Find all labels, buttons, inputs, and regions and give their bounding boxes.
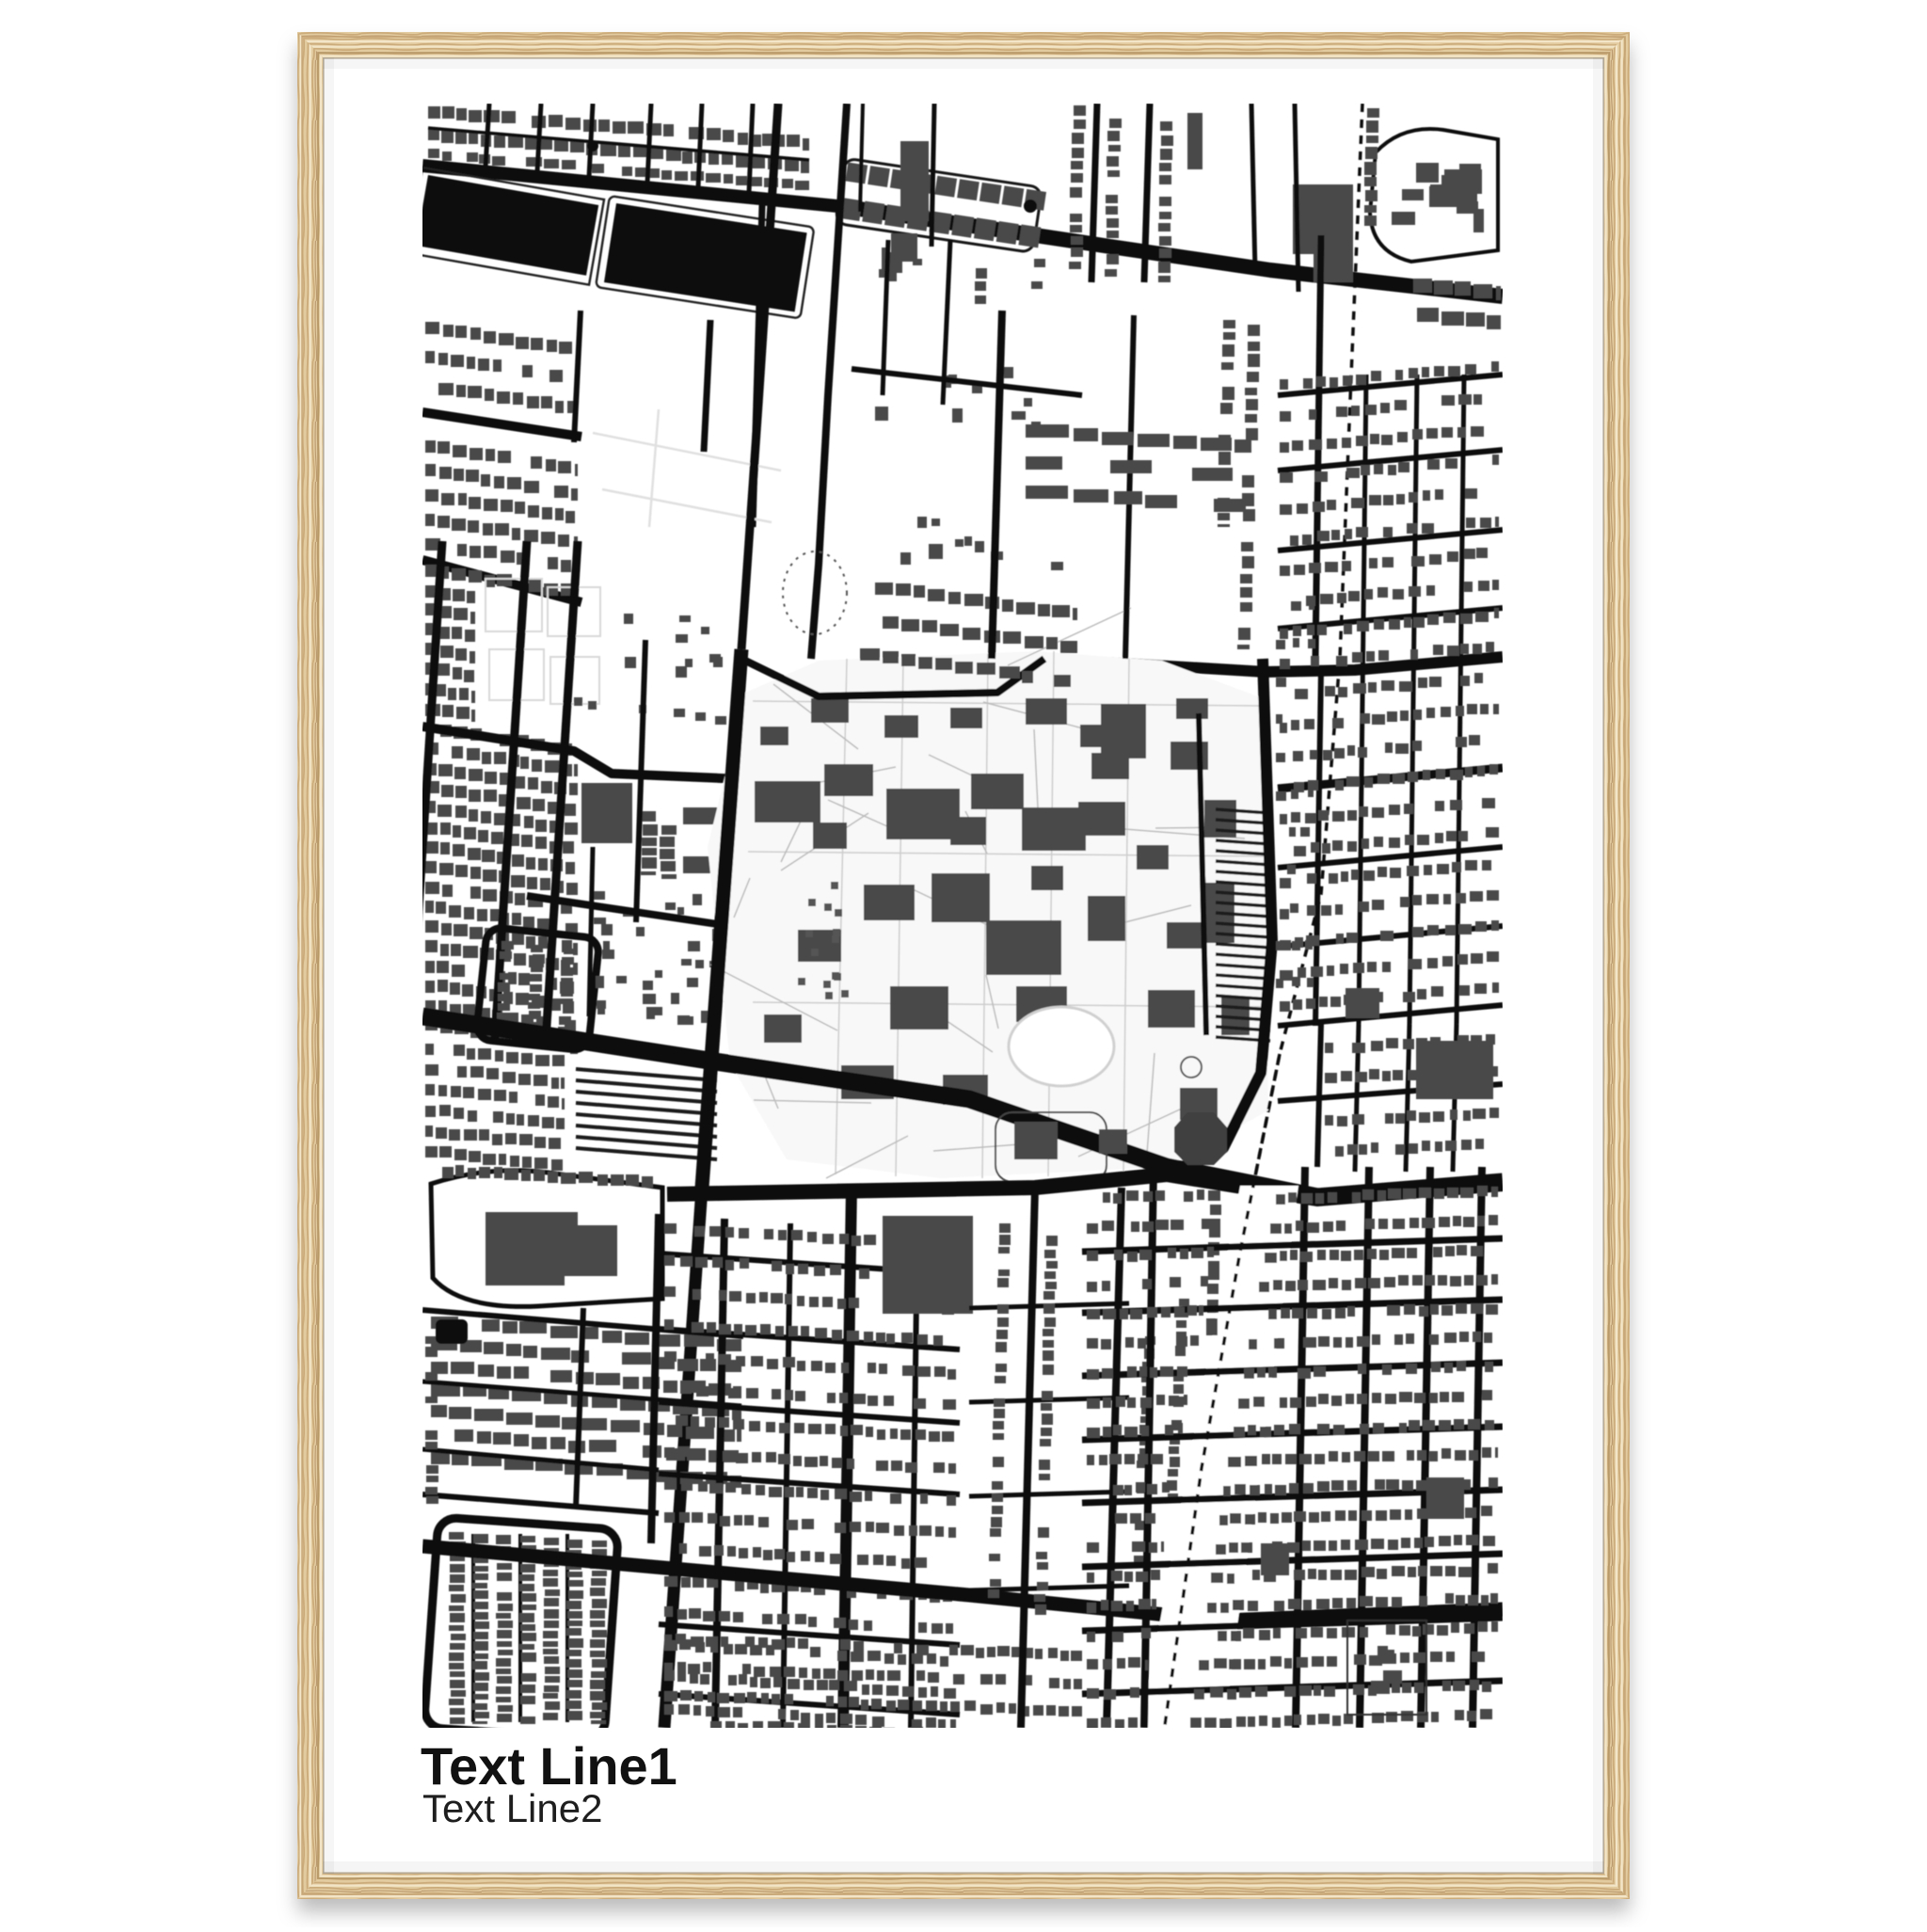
svg-text:Text Line2: Text Line2	[422, 1786, 602, 1830]
